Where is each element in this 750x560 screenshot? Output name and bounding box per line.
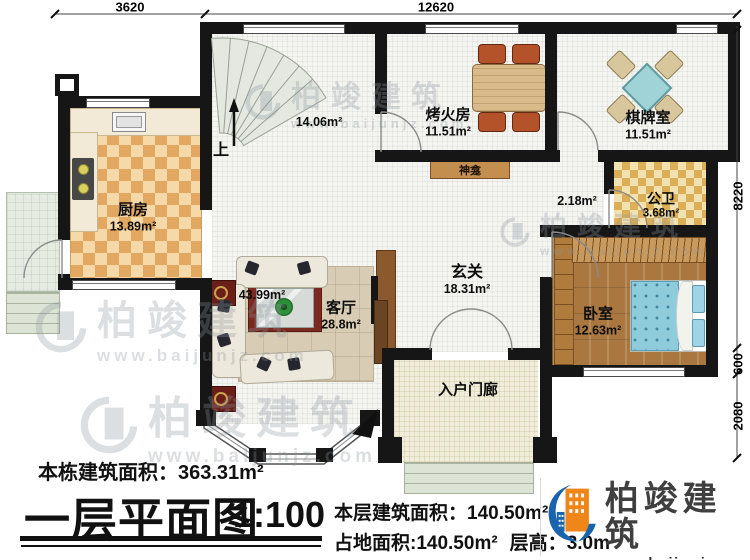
wall (58, 96, 70, 240)
watermark-text: 柏竣建筑 (148, 382, 376, 446)
total-area-value: 363.31m² (178, 462, 264, 484)
chair (512, 44, 540, 64)
company-logo: 柏竣建筑 www.baijunjz.com (546, 482, 750, 560)
bed-blanket (631, 281, 679, 351)
watermark-logo-icon (500, 217, 530, 247)
stove (72, 158, 94, 200)
label-fire-room: 烤火房 11.51m² (425, 108, 471, 139)
watermark-logo-icon (245, 84, 281, 120)
stove-burner (78, 164, 89, 175)
watermark-logo-icon (35, 301, 87, 353)
window (425, 24, 519, 34)
title-underline-thick (20, 536, 322, 541)
dining-table (472, 64, 546, 112)
kitchen-sink (112, 112, 146, 132)
label-kitchen: 厨房 13.89m² (110, 203, 157, 234)
total-building-area: 本栋建筑面积：363.31m² (38, 456, 264, 485)
plan-scale: 1:100 (233, 494, 325, 536)
bed-pillow (692, 319, 705, 347)
wall (508, 348, 552, 360)
dim-top-left: 3620 (116, 0, 145, 15)
wall (540, 277, 552, 460)
label-foyer: 玄关 18.31m² (444, 264, 491, 296)
side-porch (6, 192, 60, 292)
bed-sheet-fold (676, 281, 693, 351)
floor-area-label: 本层建筑面积： (334, 503, 467, 524)
dim-right-mid: 600 (731, 353, 746, 375)
porch-post (378, 437, 402, 463)
wall (706, 162, 718, 377)
floor-entry-porch (394, 360, 538, 462)
porch-post (533, 437, 557, 463)
floor-area: 本层建筑面积：140.50m² (334, 498, 548, 525)
footprint-label: 占地面积: (334, 533, 416, 554)
chair (478, 44, 506, 64)
label-living-room: 客厅 28.8m² (321, 301, 361, 332)
bed (630, 280, 710, 352)
label-bedroom: 卧室 12.63m² (575, 307, 622, 338)
company-logo-icon (546, 482, 597, 544)
wall (375, 150, 560, 162)
shrine-shelf: 神龛 (430, 160, 510, 179)
watermark-text: 柏竣建筑 (540, 205, 708, 244)
label-chess-room: 棋牌室 11.51m² (625, 111, 671, 142)
label-corridor: 2.18m² (557, 194, 597, 208)
label-bathroom: 公卫 3.68m² (643, 192, 679, 221)
logo-name: 柏竣建筑 (605, 482, 750, 553)
dim-right-top: 8220 (731, 182, 746, 211)
bed-pillow (692, 285, 705, 313)
wall (200, 22, 212, 210)
wall (706, 150, 740, 162)
total-area-label: 本栋建筑面积： (38, 462, 178, 484)
title-underline-thin (21, 545, 321, 547)
stove-burner (78, 183, 89, 194)
chair (478, 112, 506, 132)
wall (545, 22, 557, 156)
label-stair-up: 上 (213, 142, 229, 160)
logo-url: www.baijunjz.com (605, 556, 750, 560)
wall (382, 348, 394, 440)
floor-plan-page: 神龛 (0, 0, 750, 560)
porch-steps (404, 462, 534, 494)
floor-area-value: 140.50m² (467, 503, 548, 524)
label-entry-porch: 入户门廊 (438, 383, 498, 400)
wall (604, 162, 614, 194)
dim-top-right: 12620 (418, 0, 454, 15)
window (583, 367, 685, 377)
flue-column (55, 74, 79, 96)
footprint-value: 140.50m² (416, 533, 497, 554)
watermark-url: www.baijunjz.com (540, 244, 708, 258)
window (676, 24, 718, 34)
watermark-url: www.baijunjz.com (97, 346, 308, 366)
watermark-text: 柏竣建筑 (97, 288, 308, 346)
watermark: 柏竣建筑 www.baijunjz.com (35, 288, 308, 366)
dim-right-bottom: 2080 (731, 402, 746, 431)
watermark-logo-icon (80, 396, 138, 454)
title-divider (540, 478, 541, 556)
label-stair-area: 14.06m² (296, 115, 343, 129)
wall (598, 150, 708, 162)
shrine-label: 神龛 (459, 162, 481, 178)
wall (728, 22, 740, 162)
window (86, 98, 150, 108)
chair (512, 112, 540, 132)
window (243, 24, 345, 34)
